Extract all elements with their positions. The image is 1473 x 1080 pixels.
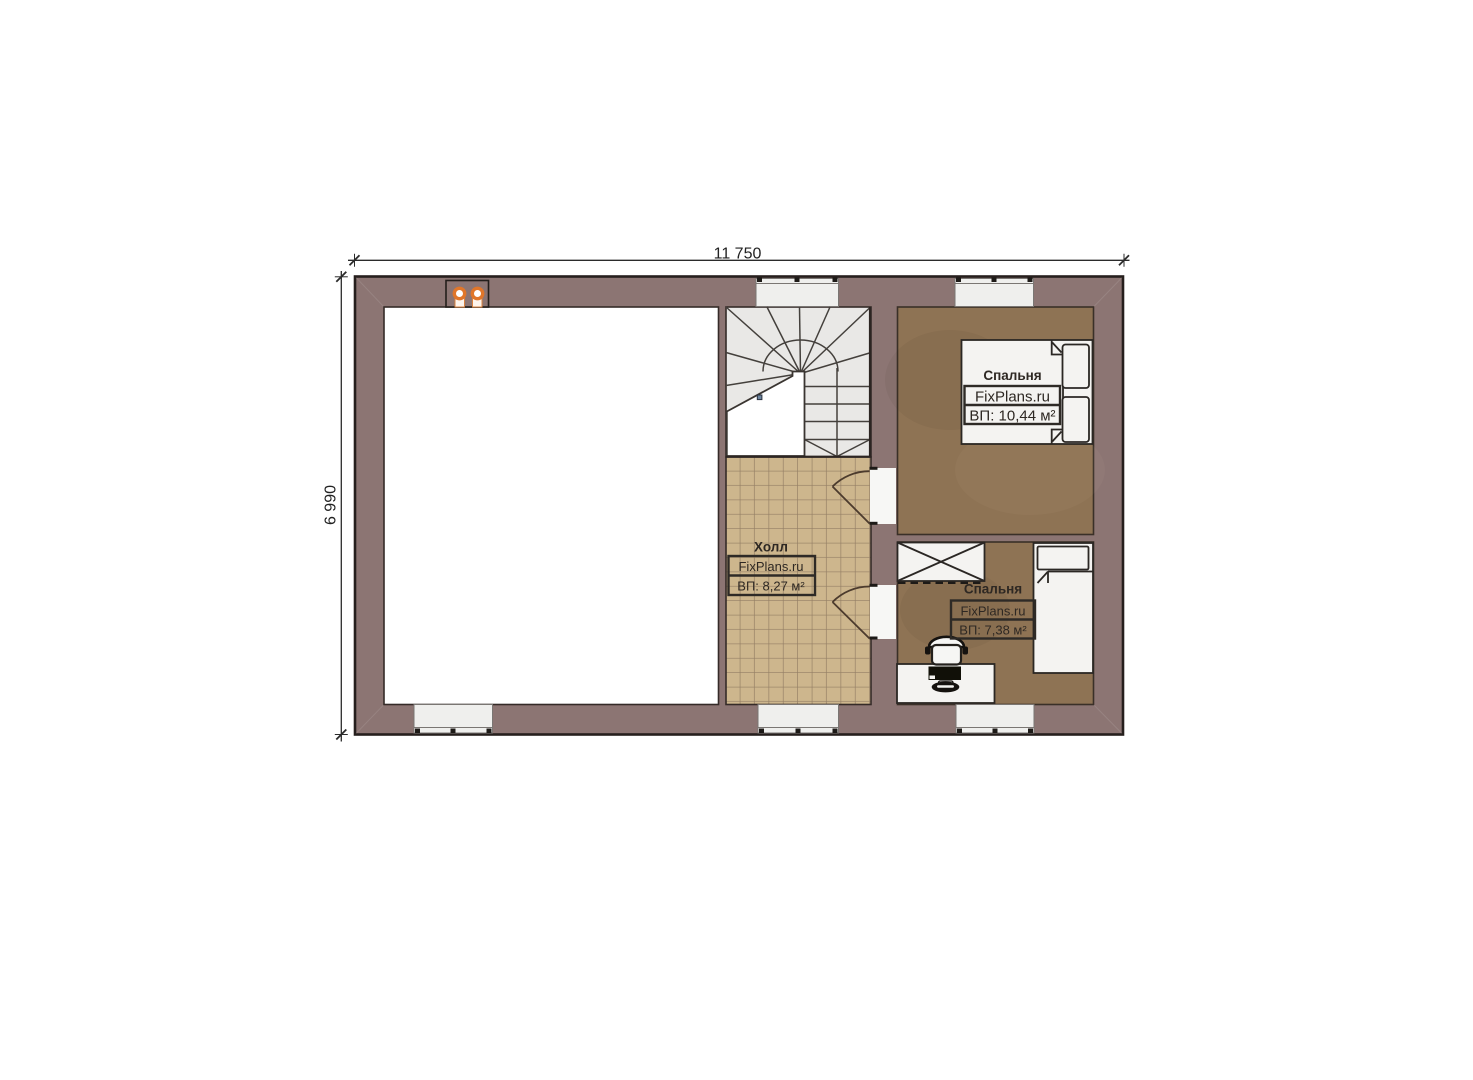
svg-text:6 990: 6 990: [323, 485, 340, 525]
svg-text:ВП: 8,27 м²: ВП: 8,27 м²: [737, 579, 805, 594]
svg-text:Спальня: Спальня: [964, 582, 1022, 597]
svg-text:ВП: 10,44 м²: ВП: 10,44 м²: [969, 408, 1055, 425]
svg-text:ВП: 7,38 м²: ВП: 7,38 м²: [959, 623, 1027, 638]
svg-text:FixPlans.ru: FixPlans.ru: [975, 389, 1050, 406]
svg-text:Спальня: Спальня: [983, 368, 1041, 383]
svg-text:Холл: Холл: [754, 540, 788, 555]
svg-text:11 750: 11 750: [714, 246, 762, 263]
svg-text:FixPlans.ru: FixPlans.ru: [738, 559, 803, 574]
svg-text:FixPlans.ru: FixPlans.ru: [960, 604, 1025, 619]
